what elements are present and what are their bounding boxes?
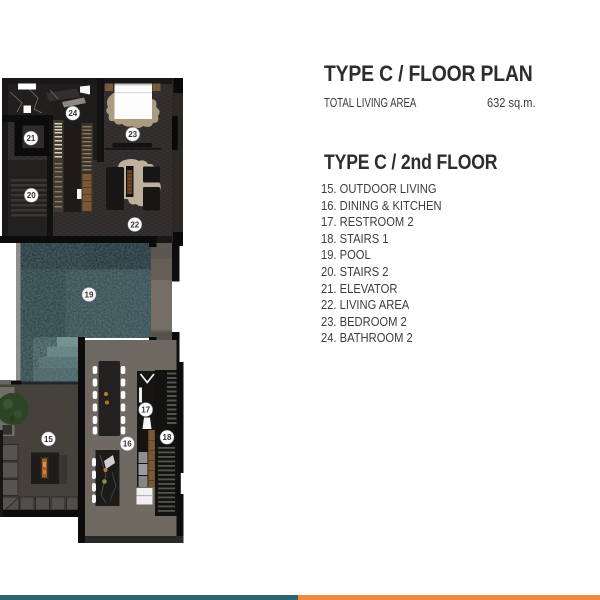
svg-text:15: 15 (44, 435, 53, 444)
svg-text:22: 22 (130, 220, 139, 229)
svg-text:24: 24 (68, 109, 77, 118)
svg-text:18: 18 (163, 433, 172, 442)
svg-text:17: 17 (141, 406, 150, 415)
svg-text:20: 20 (27, 191, 36, 200)
svg-text:23: 23 (128, 130, 137, 139)
svg-text:16: 16 (123, 440, 132, 449)
svg-text:21: 21 (26, 134, 35, 143)
svg-text:19: 19 (85, 290, 94, 299)
